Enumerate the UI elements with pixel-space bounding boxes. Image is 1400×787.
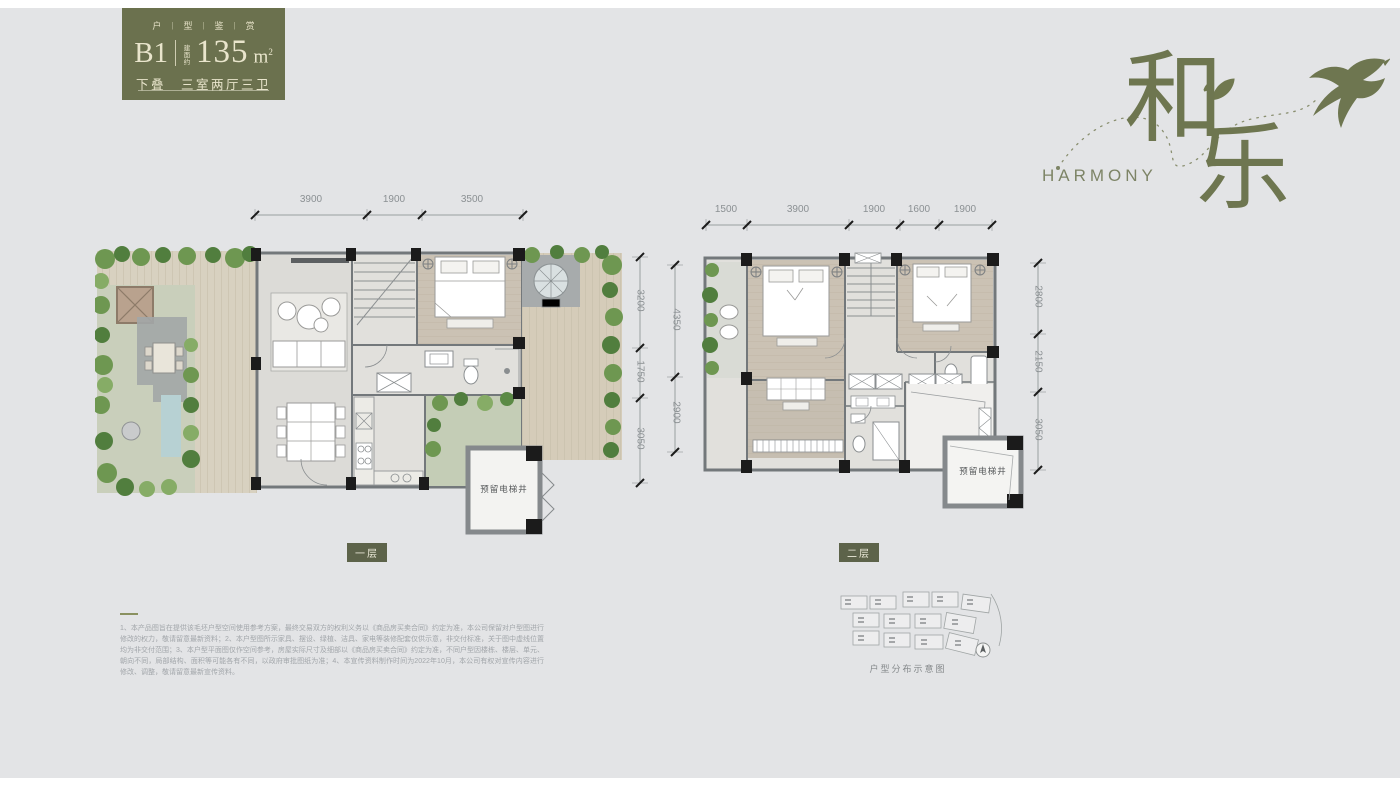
dimension-line-first-top bbox=[250, 207, 530, 223]
dimension-value: 1900 bbox=[854, 204, 894, 215]
bottom-white-strip bbox=[0, 778, 1400, 787]
dimension-value: 3900 bbox=[291, 194, 331, 205]
series-char: 赏 bbox=[246, 19, 255, 32]
brand-character-le: 乐 bbox=[1196, 122, 1290, 216]
unit-badge: 户 | 型 | 鉴 | 赏 B1 建面约 135 m2 下叠 三室两厅三卫 bbox=[122, 8, 285, 100]
floorplan-first-drawing bbox=[95, 245, 625, 535]
dimension-value: 3200 bbox=[635, 279, 646, 323]
disclaimer-rule bbox=[120, 613, 138, 615]
dimension-value: 1600 bbox=[899, 204, 939, 215]
dimension-line-second-top bbox=[698, 217, 1000, 233]
siteplan-caption: 户型分布示意图 bbox=[853, 662, 963, 675]
dimension-value: 3900 bbox=[778, 204, 818, 215]
badge-main-row: B1 建面约 135 m2 bbox=[122, 36, 285, 68]
series-separator: | bbox=[234, 21, 236, 30]
series-separator: | bbox=[202, 21, 204, 30]
dimension-value: 3500 bbox=[452, 194, 492, 205]
dimension-value: 1900 bbox=[945, 204, 985, 215]
siteplan-drawing bbox=[815, 588, 1007, 662]
series-char: 型 bbox=[183, 19, 192, 32]
poster-canvas: 户 | 型 | 鉴 | 赏 B1 建面约 135 m2 下叠 三室两厅三卫 bbox=[0, 0, 1400, 787]
top-white-strip bbox=[0, 0, 1400, 8]
area-value: 135 bbox=[196, 36, 249, 68]
floor-tag-second: 二层 bbox=[839, 543, 879, 562]
floor-tag-first: 一层 bbox=[347, 543, 387, 562]
area-label: 建面约 bbox=[183, 45, 191, 66]
elevator-shaft-label-second: 预留电梯井 bbox=[951, 465, 1015, 477]
dimension-value: 2800 bbox=[1033, 275, 1044, 319]
dimension-value: 1500 bbox=[706, 204, 746, 215]
floorplan-second-drawing bbox=[695, 250, 1075, 520]
elevator-shaft-label-first: 预留电梯井 bbox=[472, 483, 536, 495]
series-separator: | bbox=[171, 21, 173, 30]
dimension-value: 1750 bbox=[635, 350, 646, 394]
unit-code: B1 bbox=[134, 38, 168, 68]
badge-divider bbox=[175, 40, 176, 66]
brand-english-name: HARMONY bbox=[1042, 166, 1157, 186]
dimension-value: 3050 bbox=[1033, 408, 1044, 452]
disclaimer-text: 1、本产品图旨在提供该毛坯户型空间使用参考方案，最终交易双方的权利义务以《商品房… bbox=[120, 623, 544, 678]
area-unit: m2 bbox=[254, 41, 273, 68]
dimension-value: 4350 bbox=[671, 298, 682, 342]
badge-series-row: 户 | 型 | 鉴 | 赏 bbox=[122, 19, 285, 32]
swallow-icon bbox=[1309, 58, 1390, 128]
series-char: 鉴 bbox=[215, 19, 224, 32]
series-char: 户 bbox=[152, 19, 161, 32]
dimension-value: 1900 bbox=[374, 194, 414, 205]
dimension-value: 3050 bbox=[635, 417, 646, 461]
badge-underline bbox=[138, 90, 269, 91]
dimension-value: 2150 bbox=[1033, 340, 1044, 384]
dimension-value: 2900 bbox=[671, 391, 682, 435]
